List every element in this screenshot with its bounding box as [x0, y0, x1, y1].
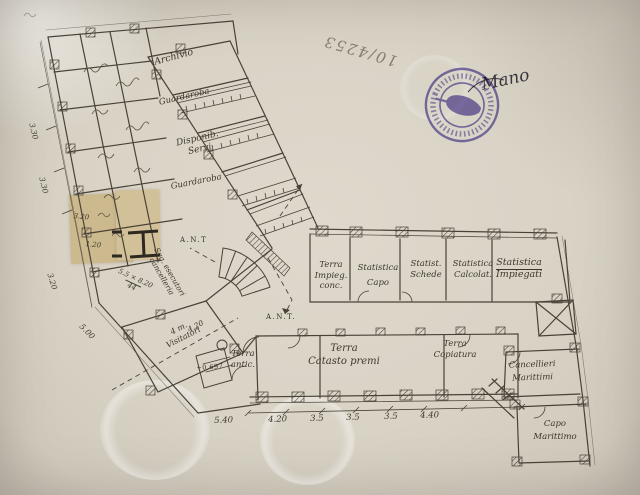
room-label-line: Statistica	[352, 263, 404, 274]
room-label-terra-copiatura: Terra Copiatura	[426, 339, 484, 360]
room-label-line: Terra	[220, 349, 266, 360]
room-label-terra-impiegati: Terra Impieg. conc.	[306, 260, 356, 292]
dim-patch-1: 3.20	[73, 212, 89, 222]
room-label-line: antic.	[220, 360, 266, 371]
room-label-line: Marittimo	[526, 432, 584, 443]
room-label-line: Impiegati	[487, 269, 551, 281]
dim-bottom-3: 3.5	[310, 414, 324, 425]
annotation-ant-corridor: A.N.T.	[266, 313, 296, 322]
room-label-terra-catasto: Terra Catasto premi	[300, 343, 388, 368]
room-label-cancellieri-marittimi: Cancellieri Marittimi	[500, 359, 565, 384]
room-label-line: Capo	[352, 278, 404, 289]
room-label-line: Terra	[306, 260, 356, 271]
room-label-line: Terra	[426, 339, 484, 350]
room-label-terra-anticamera: Terra antic.	[220, 349, 266, 370]
annotation-ant-small: A.N.T	[180, 236, 207, 245]
room-label-line: Cancellieri	[500, 359, 564, 372]
room-label-statistica-impiegati: Statistica Impiegati	[487, 257, 551, 281]
dim-bottom-4: 3.5	[346, 413, 360, 424]
stamp-center-emblem	[443, 91, 483, 122]
room-label-line: conc.	[306, 281, 356, 292]
shelving-partitions	[177, 86, 314, 236]
door-arcs	[232, 291, 545, 418]
dim-patch-2: 1.20	[85, 240, 101, 250]
dim-bottom-1: 5.40	[214, 415, 233, 426]
room-label-line: Marittimi	[500, 371, 564, 384]
room-label-capo-marittimo: Capo Marittimo	[526, 419, 584, 442]
arrowheads	[282, 184, 302, 314]
dim-bottom-6: 4.40	[420, 410, 439, 421]
room-label-statistica-schede: Statist. Schede	[404, 259, 448, 280]
room-label-line: Statist.	[404, 259, 448, 270]
room-label-line: Copiatura	[426, 350, 484, 361]
dim-bottom-2: 4.20	[268, 414, 287, 425]
room-label-line: Capo	[526, 419, 584, 430]
room-label-line: Schede	[404, 270, 448, 281]
room-label-line: Impieg.	[306, 271, 356, 282]
dim-bottom-5: 3.5	[384, 412, 398, 423]
room-label-statistica-capo: Statistica Capo	[352, 263, 404, 288]
pencil-scribbles	[24, 13, 150, 237]
scanned-floor-plan: 10/4253 Mano Archivio Guardaroba Disponi…	[0, 0, 640, 495]
room-label-line: Catasto premi	[300, 356, 388, 369]
room-label-line: Terra	[300, 343, 388, 356]
